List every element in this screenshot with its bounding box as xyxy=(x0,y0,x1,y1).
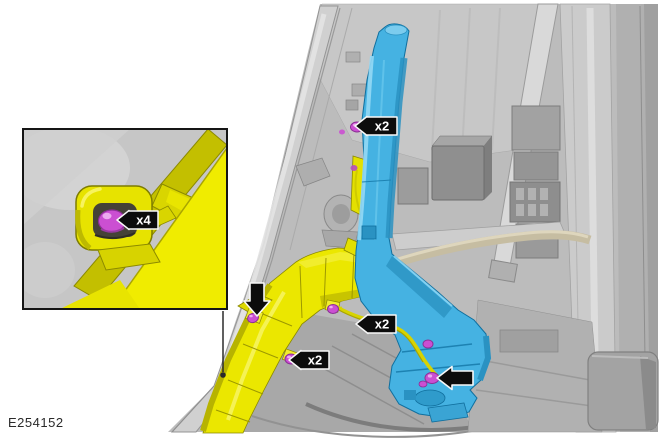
console-block xyxy=(588,352,658,430)
callout-label: x2 xyxy=(375,317,389,332)
detail-inset: x4 xyxy=(10,126,227,378)
callout-label: x2 xyxy=(308,353,322,368)
callout-label: x2 xyxy=(375,119,389,134)
figure-id-label: E254152 xyxy=(8,415,64,430)
callout-label: x4 xyxy=(136,213,151,228)
fastener-clip xyxy=(423,340,433,348)
figure-canvas: x4 x2 x2 x2 E254152 xyxy=(0,0,672,442)
vehicle-cutaway-illustration: x4 x2 x2 x2 xyxy=(0,0,672,442)
fastener-clip xyxy=(328,305,339,314)
